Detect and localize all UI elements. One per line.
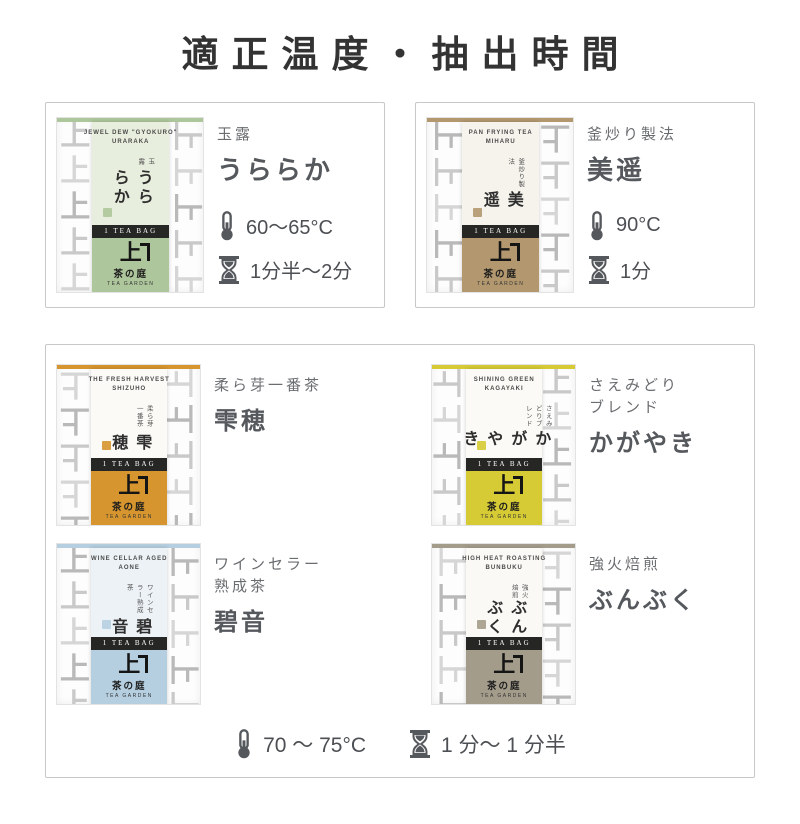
package-vertical-title: 玉露 うららか	[107, 152, 155, 225]
package-label-band: JEWEL DEW "GYOKURO"URARAKA 玉露 うららか 1 TEA…	[92, 122, 169, 292]
package-accent-footer: 上 茶の庭 TEA GARDEN	[466, 650, 542, 704]
brand-name-en: TEA GARDEN	[481, 514, 528, 520]
brand-name-en: TEA GARDEN	[477, 281, 524, 287]
product-aone[interactable]: 上上上上上上上上上上上上上上上上上上上上上上上上 WINE CELLAR AGE…	[56, 543, 369, 705]
brand-name-en: TEA GARDEN	[106, 693, 153, 699]
package-vertical-title: 柔ら芽一番茶 雫穂	[105, 399, 153, 458]
package-english-caption: HIGH HEAT ROASTINGBUNBUKU	[462, 555, 546, 573]
package-label-band: PAN FRYING TEAMIHARU 釜炒り製法 美遥 1 TEA BAG …	[462, 122, 539, 292]
product-card-uraraka[interactable]: 上上上上上上上上上上上上上上上上上上上上上上上上 JEWEL DEW "GYOK…	[45, 102, 385, 308]
package-vertical-title: 強火焙煎 ぶんぶく	[480, 578, 528, 637]
package-stamp	[477, 620, 486, 629]
brand-kanji-logo: 上	[118, 475, 140, 497]
teabag-count-band: 1 TEA BAG	[91, 637, 167, 650]
package-english-caption: WINE CELLAR AGEDAONE	[91, 555, 167, 573]
package-accent-footer: 上 茶の庭 TEA GARDEN	[462, 238, 539, 292]
brand-kanji-logo: 上	[490, 242, 512, 264]
product-category: 強火焙煎	[589, 555, 697, 577]
product-category: 釜炒り製法	[587, 125, 677, 147]
temperature-value: 70 〜 75°C	[263, 729, 366, 759]
package-label-panel: HIGH HEAT ROASTINGBUNBUKU 強火焙煎 ぶんぶく	[466, 548, 542, 637]
package-stamp	[102, 441, 111, 450]
tea-package-bunbuku: 上上上上上上上上上上上上上上上上上上上上上上上上 HIGH HEAT ROAST…	[431, 543, 576, 705]
time-value: 1分半〜2分	[250, 255, 352, 284]
temperature-spec: 90°C	[587, 209, 677, 243]
package-stamp	[473, 208, 482, 217]
package-label-band: WINE CELLAR AGEDAONE ワインセラー熟成茶 碧音 1 TEA …	[91, 548, 167, 704]
product-info: 柔ら芽一番茶 雫穂	[214, 364, 322, 526]
top-cards-row: 上上上上上上上上上上上上上上上上上上上上上上上上 JEWEL DEW "GYOK…	[45, 102, 755, 308]
tea-package-uraraka: 上上上上上上上上上上上上上上上上上上上上上上上上 JEWEL DEW "GYOK…	[56, 117, 204, 293]
brand-name: 茶の庭	[487, 499, 522, 513]
product-info: ワインセラー熟成茶 碧音	[214, 543, 322, 705]
product-info: 釜炒り製法 美遥 90°C	[587, 117, 677, 293]
time-spec: 1 分〜 1 分半	[408, 729, 566, 759]
package-label-panel: JEWEL DEW "GYOKURO"URARAKA 玉露 うららか	[92, 122, 169, 225]
product-name: 雫穂	[214, 401, 322, 436]
product-name: かがやき	[589, 423, 697, 458]
package-english-caption: SHINING GREENKAGAYAKI	[474, 376, 535, 394]
product-info: 強火焙煎 ぶんぶく	[589, 543, 697, 705]
teabag-count-band: 1 TEA BAG	[91, 458, 167, 471]
brand-kanji-logo: 上	[118, 654, 140, 676]
tea-package-shizuho: 上上上上上上上上上上上上上上上上上上上上上上上上 THE FRESH HARVE…	[56, 364, 201, 526]
teabag-count-band: 1 TEA BAG	[462, 225, 539, 238]
product-info: 玉露 うららか 60〜65°C	[217, 117, 352, 293]
product-bunbuku[interactable]: 上上上上上上上上上上上上上上上上上上上上上上上上 HIGH HEAT ROAST…	[431, 543, 744, 705]
package-label-panel: SHINING GREENKAGAYAKI さえみどりブレンド かがやき	[466, 369, 542, 458]
teabag-count-band: 1 TEA BAG	[466, 637, 542, 650]
brand-name-en: TEA GARDEN	[106, 514, 153, 520]
brand-kanji-logo: 上	[120, 242, 142, 264]
time-value: 1 分〜 1 分半	[441, 729, 566, 759]
group-card: 上上上上上上上上上上上上上上上上上上上上上上上上 THE FRESH HARVE…	[45, 344, 755, 778]
product-grid: 上上上上上上上上上上上上上上上上上上上上上上上上 THE FRESH HARVE…	[56, 364, 744, 705]
hourglass-icon	[587, 255, 611, 285]
package-vertical-title: ワインセラー熟成茶 碧音	[105, 578, 153, 637]
product-card-miharu[interactable]: 上上上上上上上上上上上上上上上上上上上上上上上上 PAN FRYING TEAM…	[415, 102, 755, 308]
product-kagayaki[interactable]: 上上上上上上上上上上上上上上上上上上上上上上上上 SHINING GREENKA…	[431, 364, 744, 526]
product-category: 玉露	[217, 125, 352, 147]
time-spec: 1分半〜2分	[217, 255, 352, 285]
hourglass-icon	[408, 729, 432, 759]
brand-name: 茶の庭	[112, 678, 147, 692]
package-stamp	[102, 620, 111, 629]
package-accent-footer: 上 茶の庭 TEA GARDEN	[91, 650, 167, 704]
package-label-panel: THE FRESH HARVESTSHIZUHO 柔ら芽一番茶 雫穂	[91, 369, 167, 458]
brand-name: 茶の庭	[112, 499, 147, 513]
brand-kanji-logo: 上	[493, 475, 515, 497]
thermometer-icon	[234, 727, 254, 761]
brand-name-en: TEA GARDEN	[107, 281, 154, 287]
thermometer-icon	[587, 209, 607, 243]
brew-specs: 90°C 1分	[587, 209, 677, 285]
product-category: ワインセラー熟成茶	[214, 555, 322, 599]
product-category: さえみどりブレンド	[589, 376, 697, 420]
brew-specs: 60〜65°C 1分半〜2分	[217, 209, 352, 285]
package-label-band: HIGH HEAT ROASTINGBUNBUKU 強火焙煎 ぶんぶく 1 TE…	[466, 548, 542, 704]
package-english-caption: PAN FRYING TEAMIHARU	[469, 129, 533, 147]
product-name: ぶんぶく	[589, 580, 697, 615]
package-vertical-title: さえみどりブレンド かがやき	[456, 399, 552, 458]
temperature-value: 60〜65°C	[246, 211, 333, 240]
package-stamp	[477, 441, 486, 450]
package-vertical-title: 釜炒り製法 美遥	[477, 152, 525, 225]
brand-name: 茶の庭	[487, 678, 522, 692]
package-label-band: THE FRESH HARVESTSHIZUHO 柔ら芽一番茶 雫穂 1 TEA…	[91, 369, 167, 525]
package-accent-footer: 上 茶の庭 TEA GARDEN	[91, 471, 167, 525]
product-name: 碧音	[214, 602, 322, 637]
content-wrapper: 上上上上上上上上上上上上上上上上上上上上上上上上 JEWEL DEW "GYOK…	[45, 102, 755, 778]
temperature-spec: 60〜65°C	[217, 209, 352, 243]
tea-package-aone: 上上上上上上上上上上上上上上上上上上上上上上上上 WINE CELLAR AGE…	[56, 543, 201, 705]
product-category: 柔ら芽一番茶	[214, 376, 322, 398]
package-label-panel: WINE CELLAR AGEDAONE ワインセラー熟成茶 碧音	[91, 548, 167, 637]
tea-package-kagayaki: 上上上上上上上上上上上上上上上上上上上上上上上上 SHINING GREENKA…	[431, 364, 576, 526]
thermometer-icon	[217, 209, 237, 243]
teabag-count-band: 1 TEA BAG	[466, 458, 542, 471]
product-name: 美遥	[587, 150, 677, 187]
tea-package-miharu: 上上上上上上上上上上上上上上上上上上上上上上上上 PAN FRYING TEAM…	[426, 117, 574, 293]
page-title: 適正温度・抽出時間	[0, 24, 800, 78]
shared-brew-specs: 70 〜 75°C 1 分〜 1 分半	[56, 727, 744, 761]
product-name: うららか	[217, 150, 352, 187]
package-stamp	[103, 208, 112, 217]
teabag-count-band: 1 TEA BAG	[92, 225, 169, 238]
temperature-value: 90°C	[616, 214, 661, 237]
hourglass-icon	[217, 255, 241, 285]
time-spec: 1分	[587, 255, 677, 285]
brand-name-en: TEA GARDEN	[481, 693, 528, 699]
package-english-caption: JEWEL DEW "GYOKURO"URARAKA	[84, 129, 178, 147]
product-info: さえみどりブレンド かがやき	[589, 364, 697, 526]
product-shizuho[interactable]: 上上上上上上上上上上上上上上上上上上上上上上上上 THE FRESH HARVE…	[56, 364, 369, 526]
brand-name: 茶の庭	[483, 266, 518, 280]
package-english-caption: THE FRESH HARVESTSHIZUHO	[89, 376, 170, 394]
brand-name: 茶の庭	[113, 266, 148, 280]
package-label-band: SHINING GREENKAGAYAKI さえみどりブレンド かがやき 1 T…	[466, 369, 542, 525]
temperature-spec: 70 〜 75°C	[234, 727, 366, 761]
package-label-panel: PAN FRYING TEAMIHARU 釜炒り製法 美遥	[462, 122, 539, 225]
time-value: 1分	[620, 255, 651, 284]
package-accent-footer: 上 茶の庭 TEA GARDEN	[92, 238, 169, 292]
brand-kanji-logo: 上	[493, 654, 515, 676]
package-accent-footer: 上 茶の庭 TEA GARDEN	[466, 471, 542, 525]
